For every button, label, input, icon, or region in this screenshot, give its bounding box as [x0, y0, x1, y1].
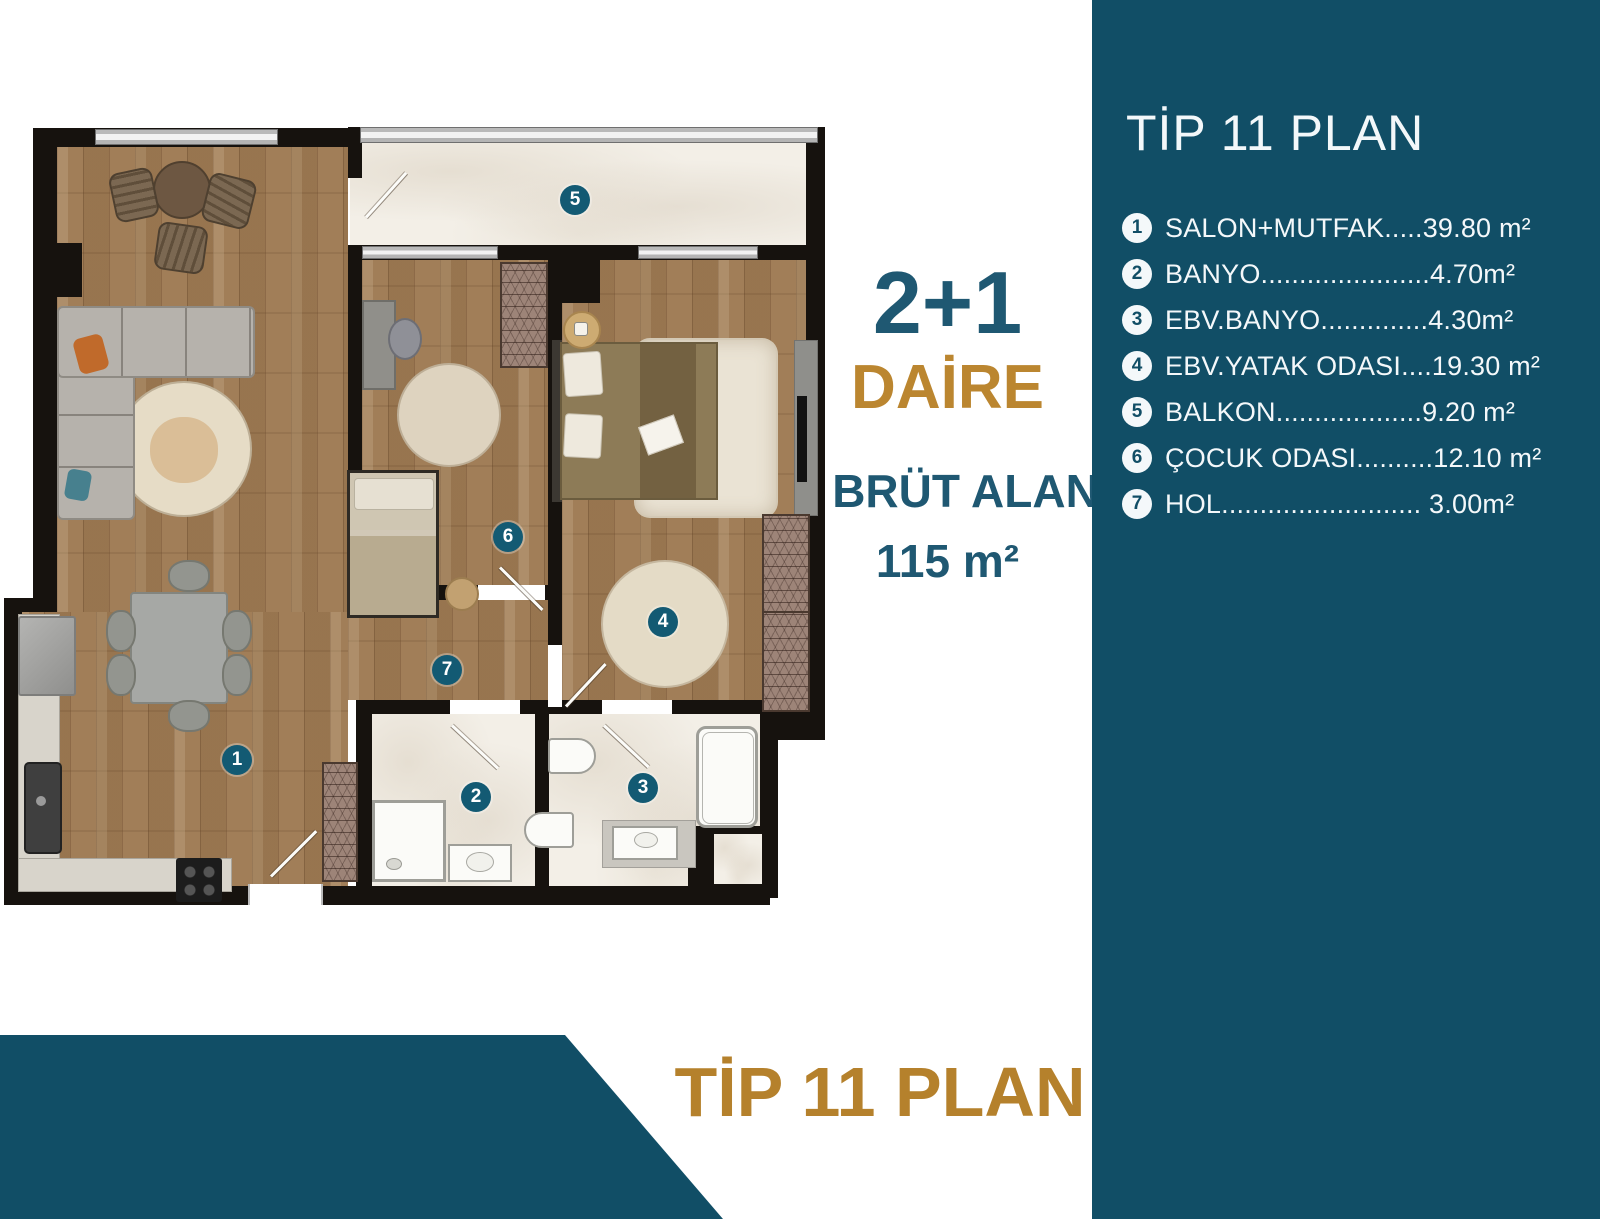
legend-label: EBV.YATAK ODASI....19.30 m²: [1165, 351, 1540, 382]
armchair: [153, 221, 209, 275]
entrance-opening: [248, 884, 323, 905]
legend-row-hall: 7 HOL.......................... 3.00m²: [1122, 481, 1592, 527]
room-marker-ensuite: 3: [628, 773, 658, 803]
dining-chair: [168, 700, 210, 732]
room-marker-hall: 7: [432, 655, 462, 685]
dining-chair: [222, 654, 252, 696]
legend-label: EBV.BANYO..............4.30m²: [1165, 305, 1513, 336]
dining-chair: [106, 654, 136, 696]
wall: [760, 714, 778, 834]
room-legend: 1 SALON+MUTFAK.....39.80 m² 2 BANYO.....…: [1122, 205, 1592, 527]
door-opening: [478, 585, 545, 600]
child-wardrobe: [500, 262, 548, 368]
dining-chair: [168, 560, 210, 592]
wall: [356, 712, 372, 890]
legend-row-ensuite-bathroom: 3 EBV.BANYO..............4.30m²: [1122, 297, 1592, 343]
wall: [535, 714, 549, 886]
shower-drain: [386, 858, 402, 870]
kitchen-sink: [24, 762, 62, 854]
dining-chair: [222, 610, 252, 652]
ensuite-sink-basin: [634, 832, 658, 848]
layout-type: 2+1: [805, 252, 1090, 354]
child-bed-pillow: [354, 478, 434, 510]
bathtub-inner: [702, 732, 754, 824]
legend-badge: 7: [1122, 489, 1152, 519]
legend-row-master-bedroom: 4 EBV.YATAK ODASI....19.30 m²: [1122, 343, 1592, 389]
legend-badge: 2: [1122, 259, 1152, 289]
wall-column: [33, 243, 82, 297]
legend-label: BANYO......................4.70m²: [1165, 259, 1515, 290]
gross-area-label: BRÜT ALAN: [818, 464, 1113, 518]
bedroom-window: [638, 246, 758, 259]
salon-window: [95, 129, 278, 145]
floor-plan: 1 2 3 4 5 6 7: [0, 0, 830, 920]
salon-rug-accent: [150, 417, 218, 483]
legend-badge: 1: [1122, 213, 1152, 243]
legend-badge: 6: [1122, 443, 1152, 473]
wardrobe-divider: [762, 611, 810, 613]
toilet: [524, 812, 574, 848]
room-marker-master-bedroom: 4: [648, 607, 678, 637]
bed-pillow: [563, 413, 603, 459]
ensuite-toilet: [548, 738, 596, 774]
legend-row-balcony: 5 BALKON...................9.20 m²: [1122, 389, 1592, 435]
unit-label: DAİRE: [805, 352, 1090, 423]
legend-label: SALON+MUTFAK.....39.80 m²: [1165, 213, 1531, 244]
hall-closet: [322, 762, 358, 882]
legend-badge: 3: [1122, 305, 1152, 335]
wall-bath-top: [356, 700, 825, 714]
master-wardrobe: [762, 514, 810, 712]
footer-band: [0, 1035, 730, 1219]
legend-row-salon: 1 SALON+MUTFAK.....39.80 m²: [1122, 205, 1592, 251]
child-room-window: [362, 246, 498, 259]
door-opening: [548, 645, 562, 707]
page: 1 2 3 4 5 6 7 2+1 DAİRE BRÜT ALAN 115 m²…: [0, 0, 1600, 1219]
niche: [714, 834, 762, 884]
legend-label: ÇOCUK ODASI..........12.10 m²: [1165, 443, 1541, 474]
door-opening: [450, 700, 520, 714]
wall: [4, 598, 57, 612]
kitchen-faucet: [36, 796, 46, 806]
nightstand-lamp: [574, 322, 588, 336]
wall: [33, 128, 57, 612]
child-desk-chair: [388, 318, 422, 360]
legend-label: HOL.......................... 3.00m²: [1165, 489, 1514, 520]
sidebar-plan-title: TİP 11 PLAN: [1126, 104, 1424, 162]
footer-plan-title: TİP 11 PLAN: [660, 1052, 1100, 1132]
child-bed-blanket: [350, 530, 436, 615]
dining-chair: [106, 610, 136, 652]
wall-column: [548, 245, 600, 303]
dining-table: [130, 592, 228, 704]
legend-row-child-room: 6 ÇOCUK ODASI..........12.10 m²: [1122, 435, 1592, 481]
fridge: [18, 616, 76, 696]
room-marker-salon: 1: [222, 745, 252, 775]
child-pouf: [445, 577, 479, 611]
room-marker-balcony: 5: [560, 185, 590, 215]
balcony-railing: [360, 127, 818, 143]
room-marker-bathroom: 2: [461, 782, 491, 812]
child-rug: [397, 363, 501, 467]
stove: [176, 858, 222, 902]
legend-badge: 4: [1122, 351, 1152, 381]
sink-basin: [466, 852, 494, 872]
room-marker-child-room: 6: [493, 522, 523, 552]
door-opening: [602, 700, 672, 714]
sidebar: TİP 11 PLAN 1 SALON+MUTFAK.....39.80 m² …: [1092, 0, 1600, 1219]
bed-pillow: [563, 351, 604, 398]
shower: [372, 800, 446, 882]
legend-row-bathroom: 2 BANYO......................4.70m²: [1122, 251, 1592, 297]
legend-badge: 5: [1122, 397, 1152, 427]
legend-label: BALKON...................9.20 m²: [1165, 397, 1515, 428]
gross-area-value: 115 m²: [805, 534, 1090, 588]
